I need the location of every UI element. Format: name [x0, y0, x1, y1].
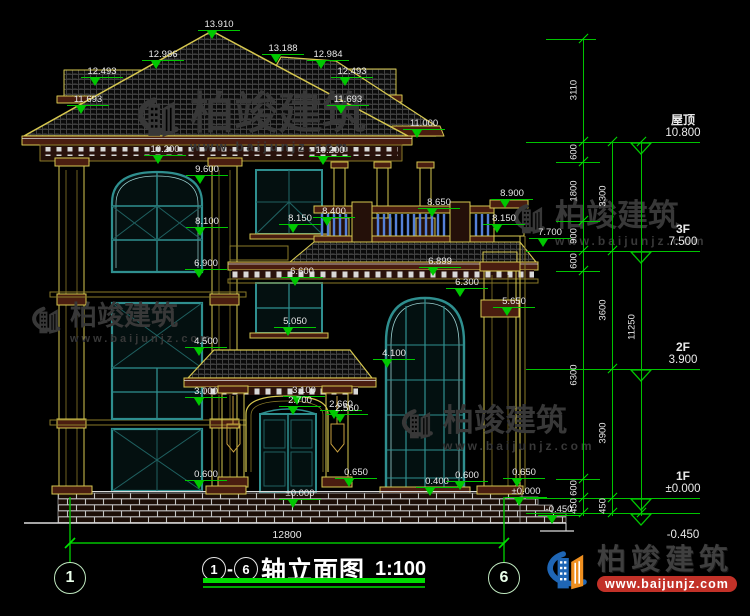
watermark-building-icon: [393, 405, 437, 449]
level-flag-label: 2F3.900: [648, 341, 718, 367]
watermark: 柏竣建筑www.baijunjz.com: [393, 405, 595, 453]
dim-extension-line: [526, 251, 700, 252]
dim-extension-line: [526, 513, 700, 514]
dim-extension-line: [546, 39, 596, 40]
axis-bubble-6: 6: [488, 562, 520, 594]
watermark-url: www.baijunjz.com: [70, 333, 213, 345]
dim-extension-line: [526, 369, 700, 370]
dim-chain-value: 6300: [569, 364, 580, 385]
dim-chain-value: 900: [569, 228, 580, 244]
dim-chain-value: 600: [569, 253, 580, 269]
dim-chain-value: 1800: [569, 180, 580, 201]
brand-building-icon: [536, 546, 592, 602]
level-flag-label: 屋顶10.800: [648, 114, 718, 140]
level-flag-triangle-icon: [630, 251, 652, 264]
dim-extension-line: [526, 498, 700, 499]
dim-extension-line: [556, 271, 600, 272]
dim-chain-value: 3300: [598, 185, 609, 206]
level-flag-triangle-icon: [630, 498, 652, 511]
dim-chain-value: 11250: [627, 314, 638, 340]
dim-chain-value: 450: [598, 498, 609, 514]
brand-name: 柏竣建筑: [597, 544, 733, 576]
level-flag-label: 1F±0.000: [648, 470, 718, 496]
dim-chain-value: 450: [569, 498, 580, 514]
title-underline-thick: [203, 578, 425, 583]
brand-url: www.baijunjz.com: [605, 577, 729, 591]
watermark-text: 柏竣建筑: [443, 405, 595, 436]
level-flag-triangle-icon: [630, 369, 652, 382]
title-underline-thin: [203, 586, 425, 588]
level-flag-label: 3F7.500: [648, 223, 718, 249]
dim-chain-line: [612, 142, 613, 516]
dim-chain-line: [583, 39, 584, 516]
dim-extension-line: [526, 142, 700, 143]
brand-url-banner: www.baijunjz.com: [597, 576, 737, 592]
axis-bubble-1-label: 1: [66, 569, 75, 587]
dim-chain-value: 600: [569, 144, 580, 160]
dim-extension-line: [556, 221, 600, 222]
level-flag-triangle-icon: [630, 142, 652, 155]
dim-chain-value: 3900: [598, 422, 609, 443]
watermark-building-icon: [24, 303, 64, 343]
dim-chain-value: 3110: [569, 80, 580, 100]
level-flag-triangle-icon: [630, 513, 652, 526]
watermark: 柏竣建筑www.baijunjz.com: [24, 303, 213, 345]
axis-bubble-1: 1: [54, 562, 86, 594]
dim-chain-value: 600: [569, 480, 580, 496]
bottom-dimension: 12800: [272, 529, 301, 541]
watermark-text: 柏竣建筑: [70, 303, 213, 330]
brand-logo-block: 柏竣建筑 www.baijunjz.com: [536, 546, 750, 602]
level-flag-label: -0.450: [648, 529, 718, 542]
watermark-url: www.baijunjz.com: [443, 439, 595, 453]
axis-bubble-6-label: 6: [500, 569, 509, 587]
watermark-building-icon: [126, 92, 184, 150]
dim-chain-line: [641, 142, 642, 516]
dim-extension-line: [556, 162, 600, 163]
title-dash: -: [227, 559, 233, 580]
cad-canvas: 13.91012.98613.18812.98412.49312.49311.6…: [0, 0, 750, 616]
dim-chain-value: 3600: [598, 299, 609, 320]
